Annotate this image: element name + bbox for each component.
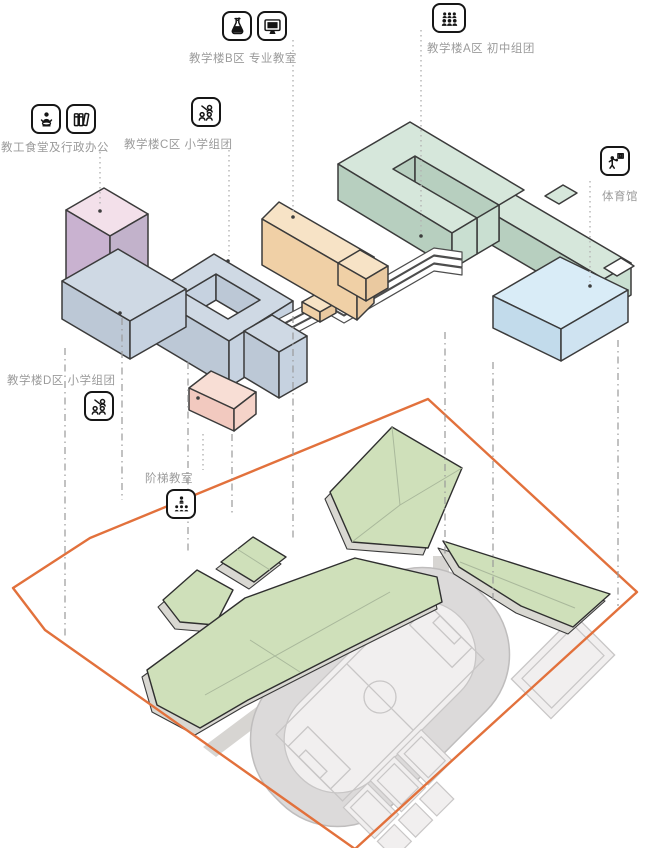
teacher-students-icon <box>191 97 221 127</box>
teacher-students-icon <box>84 391 114 421</box>
diagram-geometry <box>0 0 650 848</box>
label-lecture-icon <box>166 489 196 519</box>
lecture-audience-icon <box>166 489 196 519</box>
site-plan <box>13 399 637 848</box>
building-a-bar-tab <box>545 185 577 204</box>
label-gymnasium: 体育馆 <box>602 188 638 204</box>
label-building-b-icons <box>222 11 287 41</box>
label-building-b: 教学楼B区 专业教室 <box>189 50 297 66</box>
lecture-hall-building <box>189 371 256 431</box>
people-group-icon <box>432 3 466 33</box>
label-building-a: 教学楼A区 初中组团 <box>427 40 535 56</box>
label-building-c: 教学楼C区 小学组团 <box>124 136 233 152</box>
label-building-c-icon <box>191 97 221 127</box>
label-building-a-icons <box>432 3 466 33</box>
monitor-icon <box>257 11 287 41</box>
basketball-player-icon <box>600 146 630 176</box>
footprint-a <box>330 427 462 548</box>
buildings <box>62 122 634 431</box>
dining-person-icon <box>31 104 61 134</box>
flask-icon <box>222 11 252 41</box>
label-building-d: 教学楼D区 小学组团 <box>7 372 116 388</box>
label-gym-icon <box>600 146 630 176</box>
label-building-d-icon <box>84 391 114 421</box>
label-canteen-icons <box>31 104 96 134</box>
label-lecture-hall: 阶梯教室 <box>145 470 193 486</box>
campus-axonometric-diagram: 教学楼B区 专业教室 教学楼A区 初中组团 教工食堂及行政办公 教学楼C区 小学… <box>0 0 650 848</box>
binders-icon <box>66 104 96 134</box>
label-canteen-admin: 教工食堂及行政办公 <box>1 139 109 155</box>
